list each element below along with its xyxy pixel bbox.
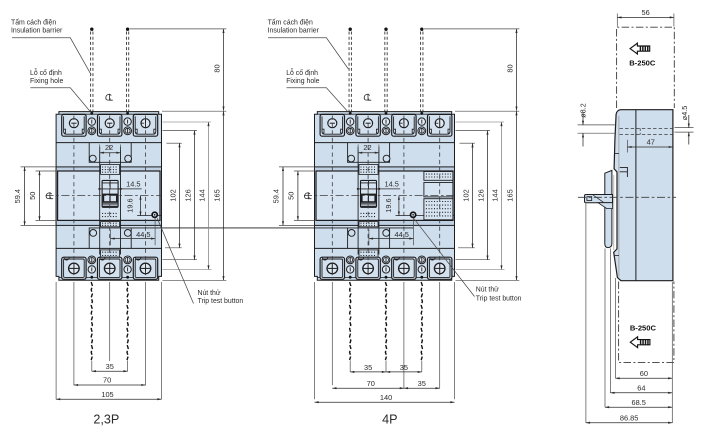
svg-text:68.5: 68.5 bbox=[631, 398, 645, 407]
svg-text:4P: 4P bbox=[382, 413, 397, 427]
svg-text:Insulation barrier: Insulation barrier bbox=[11, 27, 63, 34]
svg-text:80: 80 bbox=[505, 64, 514, 72]
svg-text:144: 144 bbox=[198, 189, 207, 201]
svg-text:35: 35 bbox=[106, 362, 114, 371]
svg-text:19.6: 19.6 bbox=[384, 198, 393, 212]
svg-text:70: 70 bbox=[367, 379, 375, 388]
svg-text:47: 47 bbox=[647, 138, 655, 147]
svg-text:60: 60 bbox=[640, 369, 648, 378]
svg-text:Trip test button: Trip test button bbox=[476, 296, 522, 303]
svg-text:80: 80 bbox=[212, 64, 221, 72]
svg-text:Insulation barrier: Insulation barrier bbox=[268, 27, 320, 34]
svg-text:Nút thử: Nút thử bbox=[198, 289, 221, 297]
svg-text:C: C bbox=[45, 191, 52, 201]
svg-text:50: 50 bbox=[286, 192, 295, 200]
svg-text:102: 102 bbox=[462, 189, 471, 201]
svg-text:2,3P: 2,3P bbox=[93, 413, 119, 427]
svg-text:22: 22 bbox=[105, 143, 113, 152]
svg-text:Trip test button: Trip test button bbox=[198, 298, 244, 305]
svg-text:50: 50 bbox=[28, 192, 37, 200]
svg-text:59.4: 59.4 bbox=[271, 189, 280, 203]
svg-text:59.4: 59.4 bbox=[13, 189, 22, 203]
svg-text:64: 64 bbox=[637, 384, 645, 393]
svg-text:35: 35 bbox=[364, 363, 372, 372]
svg-text:70: 70 bbox=[103, 376, 111, 385]
svg-text:Lỗ cố định: Lỗ cố định bbox=[286, 68, 318, 77]
svg-text:Lỗ cố định: Lỗ cố định bbox=[30, 68, 62, 77]
svg-text:Tấm cách điện: Tấm cách điện bbox=[268, 18, 313, 27]
svg-text:ø4.5: ø4.5 bbox=[680, 106, 689, 120]
svg-text:B-250C: B-250C bbox=[630, 323, 657, 332]
svg-text:B-250C: B-250C bbox=[629, 59, 656, 68]
svg-text:144: 144 bbox=[491, 189, 500, 201]
svg-text:165: 165 bbox=[213, 189, 222, 201]
svg-text:56: 56 bbox=[641, 8, 649, 17]
svg-text:126: 126 bbox=[184, 189, 193, 201]
svg-text:Tấm cách điện: Tấm cách điện bbox=[11, 18, 56, 27]
svg-text:44.5: 44.5 bbox=[136, 230, 150, 239]
svg-text:105: 105 bbox=[101, 390, 113, 399]
svg-text:126: 126 bbox=[477, 189, 486, 201]
svg-text:Fixing hole: Fixing hole bbox=[286, 78, 319, 85]
svg-text:C: C bbox=[105, 92, 112, 102]
svg-text:Nút thử: Nút thử bbox=[476, 285, 499, 293]
svg-text:22: 22 bbox=[363, 143, 371, 152]
svg-text:19.6: 19.6 bbox=[125, 198, 134, 212]
svg-text:14.5: 14.5 bbox=[126, 180, 140, 189]
svg-text:Fixing hole: Fixing hole bbox=[30, 78, 63, 85]
svg-text:14.5: 14.5 bbox=[385, 180, 399, 189]
svg-text:86.85: 86.85 bbox=[620, 413, 639, 422]
svg-text:ø8.2: ø8.2 bbox=[579, 103, 588, 117]
svg-text:44.5: 44.5 bbox=[395, 230, 409, 239]
svg-text:102: 102 bbox=[169, 189, 178, 201]
svg-text:140: 140 bbox=[380, 393, 392, 402]
svg-text:35: 35 bbox=[418, 379, 426, 388]
svg-text:C: C bbox=[363, 92, 370, 102]
svg-text:35: 35 bbox=[400, 363, 408, 372]
svg-text:C: C bbox=[304, 191, 311, 201]
svg-text:165: 165 bbox=[506, 189, 515, 201]
